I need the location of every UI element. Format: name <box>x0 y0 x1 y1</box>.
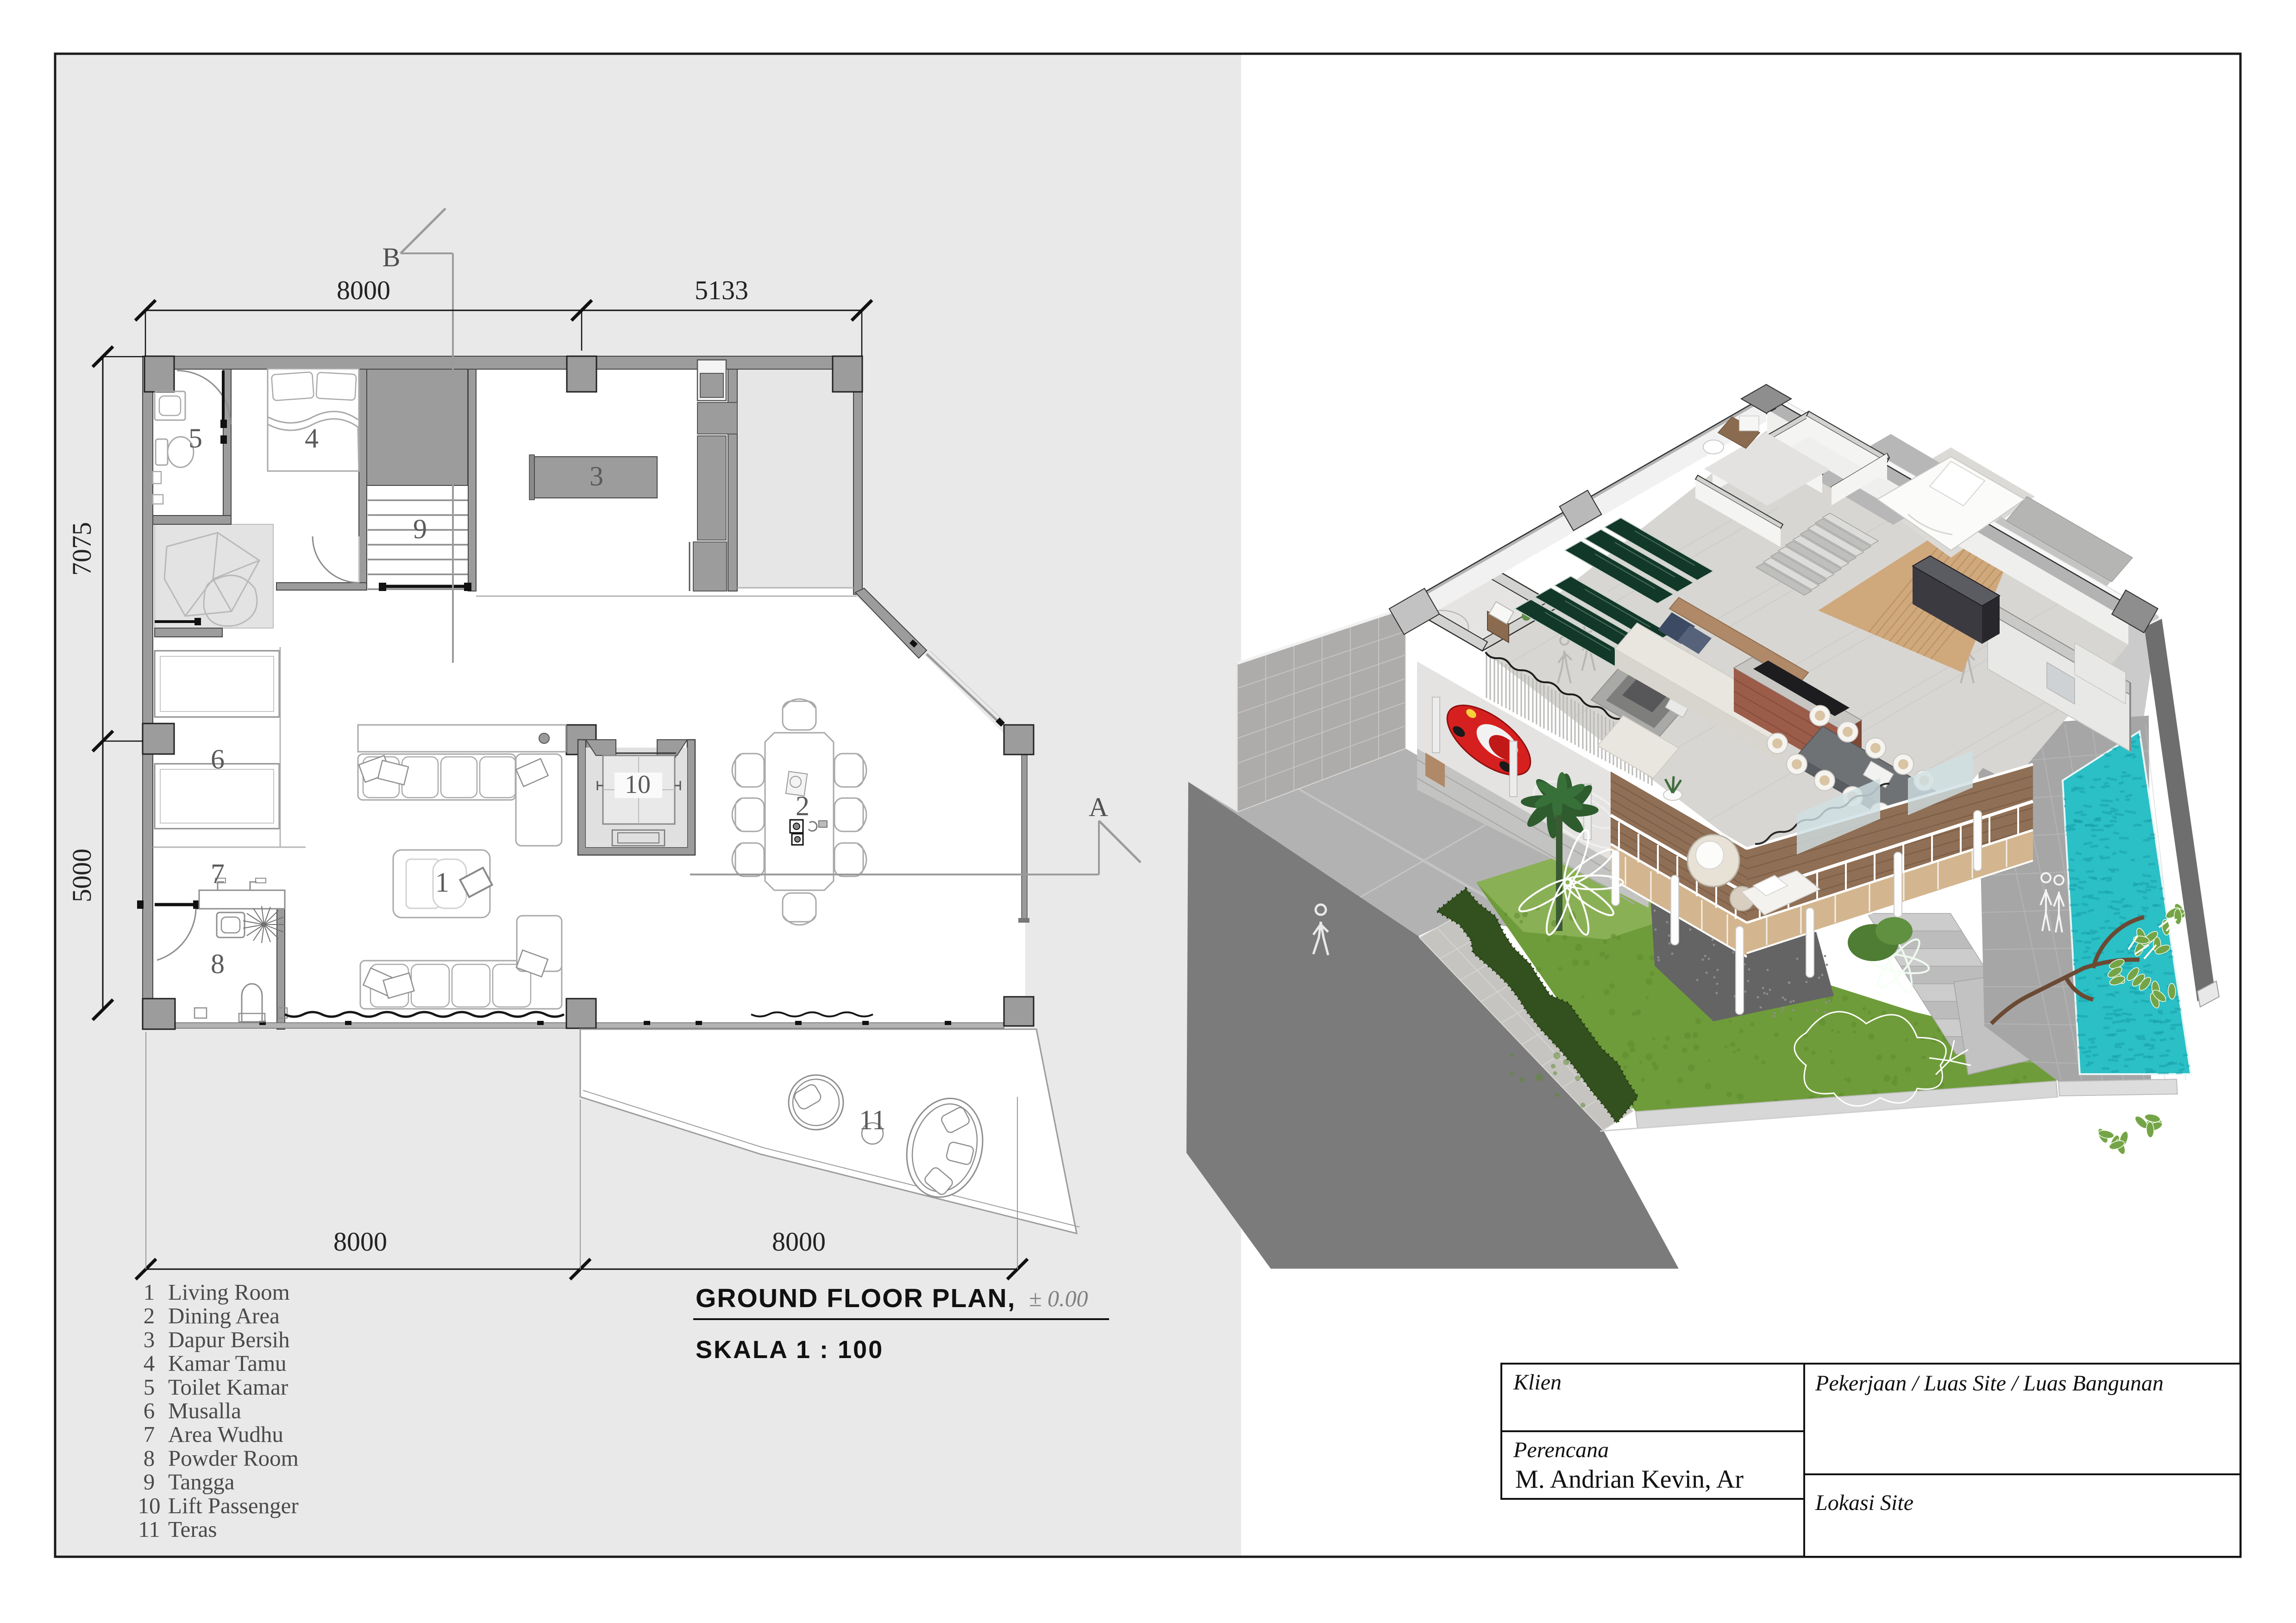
svg-text:Dining Area: Dining Area <box>168 1303 280 1328</box>
svg-text:Living Room: Living Room <box>168 1279 290 1305</box>
svg-text:3: 3 <box>144 1327 155 1352</box>
svg-text:SKALA 1 : 100: SKALA 1 : 100 <box>696 1336 884 1364</box>
svg-text:9: 9 <box>413 514 427 544</box>
svg-text:7: 7 <box>211 858 225 889</box>
svg-text:Kamar Tamu: Kamar Tamu <box>168 1351 287 1376</box>
svg-text:11: 11 <box>138 1516 160 1542</box>
svg-text:8000: 8000 <box>772 1227 826 1257</box>
svg-text:Musalla: Musalla <box>168 1398 241 1423</box>
svg-text:7075: 7075 <box>67 522 97 576</box>
svg-text:9: 9 <box>144 1469 155 1495</box>
svg-text:Pekerjaan / Luas Site / Luas B: Pekerjaan / Luas Site / Luas Bangunan <box>1815 1371 2164 1396</box>
svg-text:M. Andrian Kevin, Ar: M. Andrian Kevin, Ar <box>1515 1465 1744 1494</box>
svg-text:2: 2 <box>144 1303 155 1328</box>
svg-text:GROUND FLOOR PLAN,: GROUND FLOOR PLAN, <box>696 1283 1016 1313</box>
svg-text:4: 4 <box>305 423 319 453</box>
svg-text:Dapur Bersih: Dapur Bersih <box>168 1327 290 1352</box>
svg-text:6: 6 <box>144 1398 155 1423</box>
svg-text:8000: 8000 <box>337 275 390 305</box>
svg-text:Area Wudhu: Area Wudhu <box>168 1422 283 1447</box>
svg-text:Lokasi Site: Lokasi Site <box>1815 1491 1913 1515</box>
svg-text:8: 8 <box>211 949 225 979</box>
svg-text:7: 7 <box>144 1422 155 1447</box>
svg-text:5: 5 <box>188 423 202 453</box>
svg-text:2: 2 <box>796 791 809 821</box>
svg-text:Toilet Kamar: Toilet Kamar <box>168 1374 288 1400</box>
svg-text:8000: 8000 <box>333 1227 387 1257</box>
svg-text:5: 5 <box>144 1374 155 1400</box>
svg-text:Perencana: Perencana <box>1513 1438 1609 1462</box>
svg-text:Tangga: Tangga <box>168 1469 235 1495</box>
svg-text:1: 1 <box>435 867 449 898</box>
svg-text:5133: 5133 <box>695 275 748 305</box>
svg-text:6: 6 <box>211 744 225 774</box>
svg-text:B: B <box>383 242 401 272</box>
svg-text:1: 1 <box>144 1279 155 1305</box>
svg-text:10: 10 <box>625 770 651 799</box>
svg-text:± 0.00: ± 0.00 <box>1029 1285 1088 1311</box>
svg-text:5000: 5000 <box>67 849 97 902</box>
svg-text:3: 3 <box>590 461 603 491</box>
svg-text:A: A <box>1089 792 1108 822</box>
svg-text:Teras: Teras <box>168 1516 217 1542</box>
svg-text:11: 11 <box>859 1105 886 1135</box>
svg-text:4: 4 <box>144 1351 155 1376</box>
svg-text:Lift Passenger: Lift Passenger <box>168 1493 299 1518</box>
svg-text:10: 10 <box>138 1493 161 1518</box>
svg-text:8: 8 <box>144 1445 155 1471</box>
svg-text:Klien: Klien <box>1513 1370 1562 1395</box>
svg-text:Powder Room: Powder Room <box>168 1445 299 1471</box>
